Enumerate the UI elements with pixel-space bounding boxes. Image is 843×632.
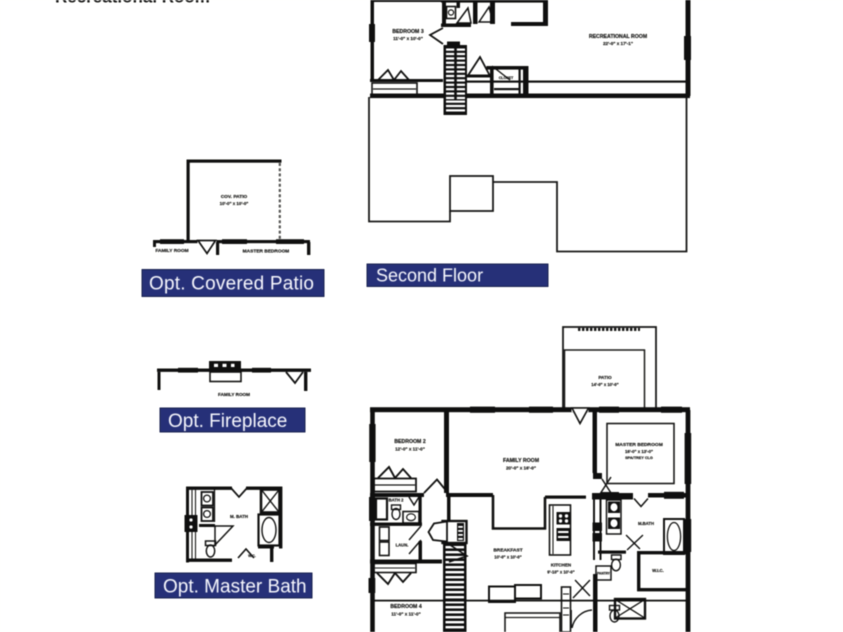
svg-text:BREAKFAST: BREAKFAST — [493, 548, 522, 554]
svg-text:PATIO: PATIO — [598, 375, 612, 380]
svg-text:LAUN.: LAUN. — [396, 543, 409, 548]
svg-text:9'-10" x 10'-0": 9'-10" x 10'-0" — [547, 570, 574, 575]
svg-text:MASTER BEDROOM: MASTER BEDROOM — [615, 442, 663, 448]
svg-text:MASTER BEDROOM: MASTER BEDROOM — [243, 249, 290, 255]
svg-text:11'-0" x 11'-0": 11'-0" x 11'-0" — [391, 612, 421, 617]
svg-text:Opt. Fireplace: Opt. Fireplace — [168, 411, 287, 432]
svg-text:22'-0" x 17'-1": 22'-0" x 17'-1" — [603, 41, 633, 46]
svg-text:10'-0" x 10'-0": 10'-0" x 10'-0" — [220, 201, 249, 206]
svg-text:BATH 2: BATH 2 — [389, 498, 404, 503]
svg-text:BEDROOM 3: BEDROOM 3 — [392, 29, 424, 35]
svg-text:10'-0" x 10'-0": 10'-0" x 10'-0" — [494, 555, 521, 560]
svg-text:COV. PATIO: COV. PATIO — [221, 194, 248, 200]
svg-text:BEDROOM 2: BEDROOM 2 — [394, 439, 426, 445]
svg-text:FAMILY ROOM: FAMILY ROOM — [503, 458, 539, 464]
svg-text:16'-0" x 13'-0": 16'-0" x 13'-0" — [625, 449, 653, 454]
svg-text:14'-0" x 10'-0": 14'-0" x 10'-0" — [591, 382, 618, 387]
svg-text:BEDROOM 4: BEDROOM 4 — [390, 604, 422, 610]
svg-text:11'-0" x 10'-0": 11'-0" x 10'-0" — [393, 36, 423, 41]
svg-text:12'-0" x 11'-0": 12'-0" x 11'-0" — [395, 447, 425, 452]
svg-text:FAMILY ROOM: FAMILY ROOM — [218, 392, 250, 397]
svg-text:W.C.: W.C. — [248, 554, 256, 558]
svg-text:W.I.C.: W.I.C. — [652, 568, 664, 573]
svg-text:Second Floor: Second Floor — [376, 266, 483, 286]
svg-text:Recreational Room: Recreational Room — [55, 0, 210, 7]
svg-text:PANTRY: PANTRY — [597, 572, 611, 576]
svg-text:RECREATIONAL ROOM: RECREATIONAL ROOM — [589, 34, 647, 40]
svg-text:KITCHEN: KITCHEN — [551, 563, 572, 568]
svg-text:SPA/TREY CLG: SPA/TREY CLG — [625, 456, 653, 460]
svg-text:M. BATH: M. BATH — [230, 514, 248, 519]
svg-text:M.BATH: M.BATH — [638, 521, 654, 526]
svg-text:Opt. Master Bath: Opt. Master Bath — [163, 577, 307, 598]
svg-text:Opt. Covered Patio: Opt. Covered Patio — [149, 274, 314, 295]
svg-text:FAMILY ROOM: FAMILY ROOM — [155, 248, 188, 254]
svg-text:20'-0" x 16'-0": 20'-0" x 16'-0" — [506, 466, 536, 471]
